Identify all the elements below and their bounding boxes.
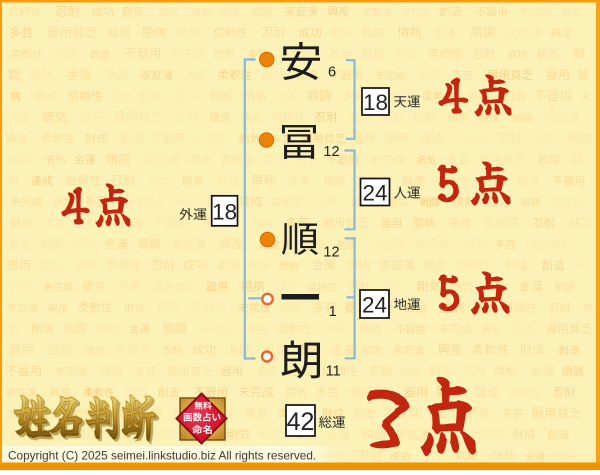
svg-text:6: 6 bbox=[328, 65, 336, 81]
svg-text:12: 12 bbox=[323, 144, 339, 160]
svg-text:18: 18 bbox=[363, 90, 388, 115]
svg-text:24: 24 bbox=[362, 293, 387, 318]
svg-text:Copyright (C) 2025 seimei.link: Copyright (C) 2025 seimei.linkstudio.biz… bbox=[8, 449, 316, 463]
svg-text:12: 12 bbox=[323, 245, 339, 261]
svg-text:1: 1 bbox=[329, 304, 337, 320]
svg-text:18: 18 bbox=[212, 200, 237, 225]
svg-text:42: 42 bbox=[287, 408, 315, 436]
svg-text:24: 24 bbox=[362, 181, 387, 206]
svg-text:11: 11 bbox=[326, 363, 341, 379]
